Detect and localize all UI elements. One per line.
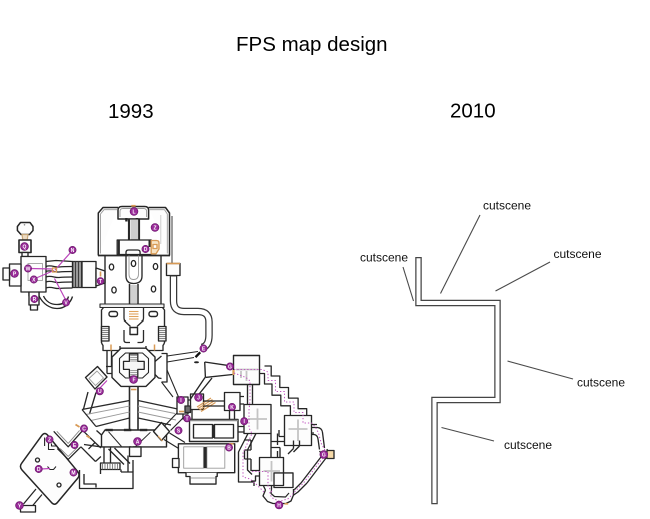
svg-text:cutscene: cutscene: [554, 247, 602, 261]
svg-text:N: N: [71, 248, 75, 254]
svg-text:Z: Z: [48, 437, 51, 443]
svg-text:A: A: [136, 439, 140, 445]
svg-text:cutscene: cutscene: [360, 251, 408, 265]
svg-text:2010: 2010: [450, 100, 496, 123]
svg-text:W: W: [26, 266, 31, 272]
svg-text:G: G: [228, 364, 232, 370]
svg-text:D: D: [144, 247, 148, 253]
svg-text:K: K: [230, 405, 234, 411]
svg-text:G: G: [322, 452, 326, 458]
svg-text:U: U: [98, 389, 102, 395]
svg-text:D: D: [37, 467, 41, 473]
svg-text:cutscene: cutscene: [483, 199, 531, 213]
svg-text:T: T: [185, 416, 188, 422]
svg-text:FPS map design: FPS map design: [236, 33, 388, 56]
svg-text:Z: Z: [153, 225, 156, 231]
svg-text:H: H: [277, 503, 281, 509]
svg-text:F: F: [132, 377, 135, 383]
svg-text:C: C: [82, 426, 86, 432]
svg-text:cutscene: cutscene: [504, 438, 552, 452]
svg-text:Q: Q: [23, 244, 27, 250]
svg-text:B: B: [227, 445, 231, 451]
svg-text:L: L: [132, 209, 135, 215]
svg-text:M: M: [71, 470, 75, 476]
svg-text:J: J: [197, 395, 200, 401]
svg-text:1993: 1993: [108, 100, 154, 123]
svg-text:R: R: [33, 297, 37, 303]
svg-text:T: T: [99, 279, 102, 285]
svg-text:cutscene: cutscene: [577, 376, 625, 390]
